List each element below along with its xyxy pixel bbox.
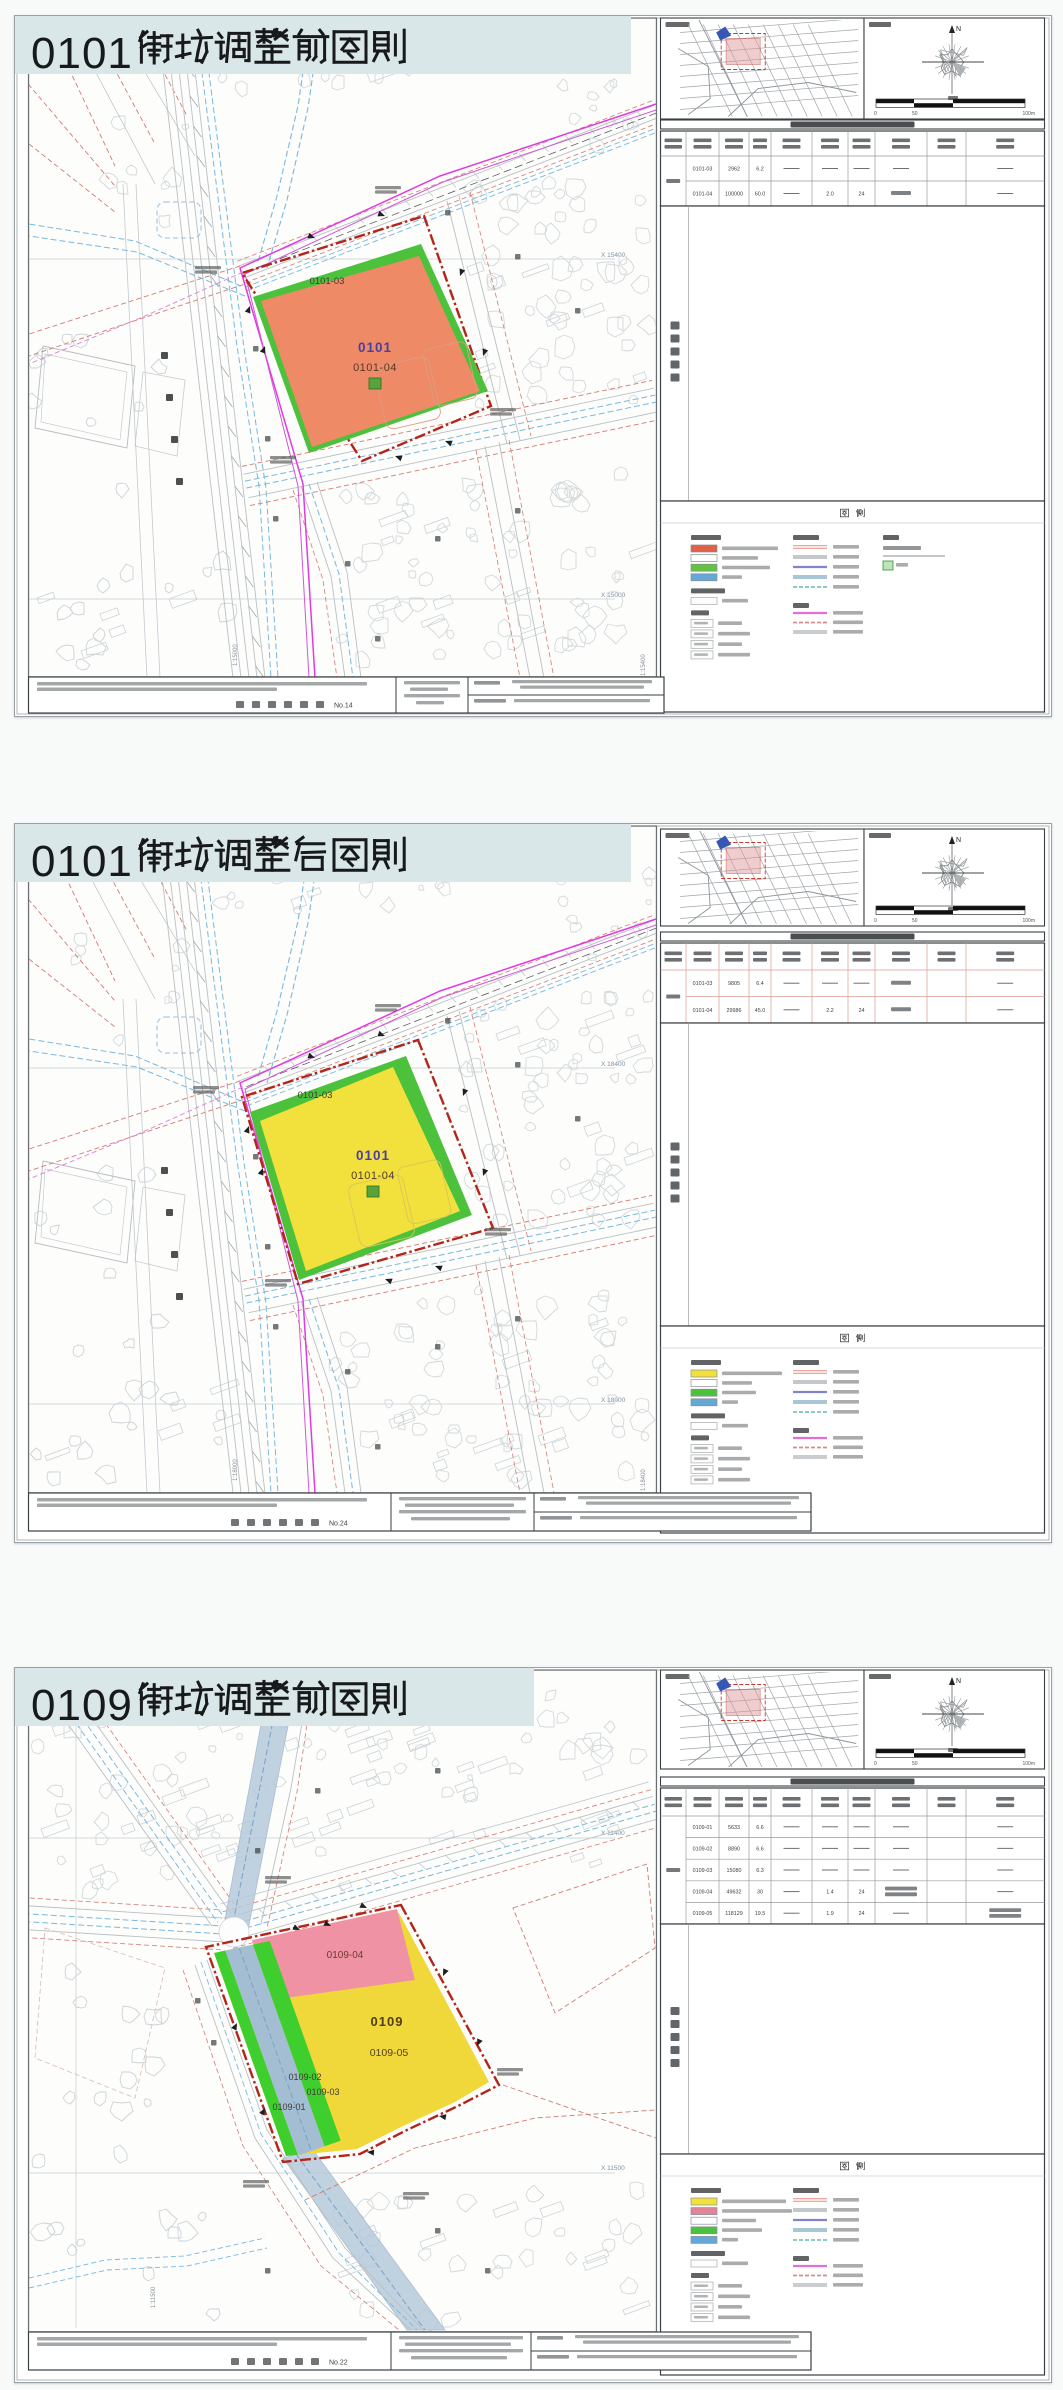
- svg-text:100m: 100m: [1023, 111, 1036, 117]
- svg-text:1:15400: 1:15400: [641, 654, 647, 676]
- svg-text:24: 24: [859, 1890, 865, 1896]
- svg-text:118129: 118129: [725, 1911, 743, 1917]
- svg-text:1.4: 1.4: [826, 1890, 834, 1896]
- svg-text:49632: 49632: [727, 1890, 742, 1896]
- svg-text:0101: 0101: [358, 340, 392, 355]
- svg-text:0101-04: 0101-04: [693, 192, 713, 198]
- svg-text:2.2: 2.2: [826, 1008, 834, 1014]
- svg-text:45.0: 45.0: [755, 1008, 766, 1014]
- svg-text:6.3: 6.3: [756, 1868, 764, 1874]
- svg-text:N: N: [956, 1678, 961, 1685]
- svg-text:0101-03: 0101-03: [310, 276, 345, 287]
- svg-text:0: 0: [874, 1761, 877, 1767]
- svg-text:0: 0: [874, 111, 877, 117]
- svg-text:N: N: [956, 837, 961, 844]
- svg-text:6.2: 6.2: [756, 167, 764, 173]
- svg-text:50: 50: [912, 918, 918, 924]
- svg-text:N: N: [956, 26, 961, 33]
- svg-text:0109-04: 0109-04: [693, 1890, 713, 1896]
- svg-text:0109-01: 0109-01: [693, 1825, 713, 1831]
- svg-text:100000: 100000: [725, 192, 743, 198]
- svg-text:1:18400: 1:18400: [641, 1469, 647, 1491]
- svg-text:0101-04: 0101-04: [351, 1170, 395, 1182]
- svg-text:6.6: 6.6: [756, 1846, 764, 1852]
- svg-text:24: 24: [859, 1008, 865, 1014]
- svg-text:5633: 5633: [728, 1825, 740, 1831]
- svg-text:0109-02: 0109-02: [288, 2072, 321, 2082]
- svg-text:0101: 0101: [31, 837, 133, 886]
- svg-text:19.5: 19.5: [755, 1911, 766, 1917]
- svg-text:29986: 29986: [727, 1008, 742, 1014]
- svg-text:0109-04: 0109-04: [327, 1950, 364, 1961]
- svg-text:50: 50: [912, 111, 918, 117]
- svg-text:100m: 100m: [1023, 1761, 1036, 1767]
- svg-text:0101-03: 0101-03: [693, 167, 713, 173]
- svg-text:2.0: 2.0: [826, 192, 834, 198]
- svg-text:0101-03: 0101-03: [693, 981, 713, 987]
- svg-text:0101-04: 0101-04: [353, 362, 397, 374]
- svg-text:24: 24: [859, 192, 865, 198]
- svg-text:0109: 0109: [371, 2014, 404, 2029]
- svg-text:0101-04: 0101-04: [693, 1008, 713, 1014]
- svg-text:X 18400: X 18400: [601, 1061, 626, 1068]
- svg-text:0101-03: 0101-03: [298, 1090, 333, 1101]
- svg-text:6.4: 6.4: [756, 981, 764, 987]
- svg-text:No.22: No.22: [329, 2360, 348, 2367]
- svg-text:60.0: 60.0: [755, 192, 766, 198]
- svg-text:9805: 9805: [728, 981, 740, 987]
- svg-text:100m: 100m: [1023, 918, 1036, 924]
- svg-text:0101: 0101: [356, 1148, 390, 1163]
- svg-text:6.6: 6.6: [756, 1825, 764, 1831]
- svg-text:0101: 0101: [31, 29, 133, 78]
- svg-text:0109-03: 0109-03: [306, 2087, 339, 2097]
- svg-text:0109-05: 0109-05: [370, 2047, 409, 2059]
- svg-text:No.14: No.14: [334, 703, 353, 710]
- svg-text:0109-01: 0109-01: [272, 2102, 305, 2112]
- svg-text:8890: 8890: [728, 1846, 740, 1852]
- svg-text:15080: 15080: [727, 1868, 742, 1874]
- svg-text:30: 30: [757, 1890, 763, 1896]
- svg-text:0109-03: 0109-03: [693, 1868, 713, 1874]
- svg-text:24: 24: [859, 1911, 865, 1917]
- svg-text:1.9: 1.9: [826, 1911, 834, 1917]
- svg-text:0: 0: [874, 918, 877, 924]
- svg-text:No.24: No.24: [329, 1521, 348, 1528]
- svg-text:X 15400: X 15400: [601, 252, 626, 259]
- svg-text:X 11500: X 11500: [601, 2165, 625, 2172]
- svg-text:50: 50: [912, 1761, 918, 1767]
- svg-text:2962: 2962: [728, 167, 740, 173]
- svg-text:1:11500: 1:11500: [151, 2286, 157, 2308]
- svg-text:0109: 0109: [31, 1681, 133, 1730]
- svg-text:0109-05: 0109-05: [693, 1911, 713, 1917]
- svg-text:0109-02: 0109-02: [693, 1846, 713, 1852]
